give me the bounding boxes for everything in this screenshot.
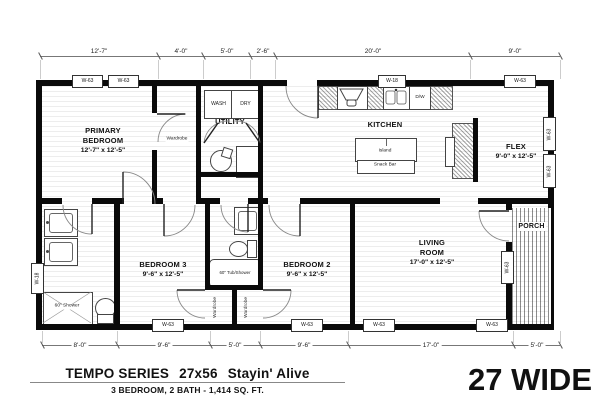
dim-top-5: 9'-0"	[507, 48, 524, 55]
dim-top-1: 4'-0"	[173, 48, 190, 55]
room-name: PRIMARY BEDROOM	[48, 126, 158, 146]
kitchen-counter	[318, 86, 339, 110]
washer: WASH	[204, 90, 233, 119]
range-hood-icon	[337, 86, 366, 108]
room-size: 9'-6" x 12'-5"	[262, 271, 352, 278]
window-label: W-63	[514, 79, 526, 84]
wall	[42, 198, 62, 204]
extension-line	[250, 60, 251, 79]
extension-line	[513, 331, 514, 343]
plan-specs: 3 BEDROOM, 2 BATH - 1,414 SQ. FT.	[30, 385, 345, 395]
snack-bar-label: Snack Bar	[373, 164, 397, 169]
extension-line	[210, 331, 211, 343]
shower-text: 60" Shower	[55, 304, 80, 309]
wall	[152, 80, 157, 113]
window-label: W-63	[373, 323, 385, 328]
wall	[473, 118, 478, 182]
extension-line	[117, 331, 118, 343]
toilet-tank-primary	[97, 314, 114, 324]
extension-line	[348, 331, 349, 343]
room-size: 9'-0" x 12'-5"	[481, 153, 551, 160]
tub-shower-text: 60" Tub/Shower	[219, 270, 250, 275]
dim-top-0: 12'-7"	[89, 48, 110, 55]
window-w63-top-2: W-63	[108, 75, 139, 88]
room-name: LIVING ROOM	[387, 238, 477, 258]
plan-title: TEMPO SERIES27x56Stayin' Alive	[30, 366, 345, 381]
extension-line	[260, 331, 261, 343]
window-label: W-63	[301, 323, 313, 328]
island-divider	[386, 139, 387, 146]
room-name: BEDROOM 3	[116, 260, 210, 270]
extension-line	[470, 60, 471, 79]
room-name: FLEX	[481, 142, 551, 152]
shower-label: 60" Shower	[54, 305, 81, 310]
wall	[156, 198, 163, 204]
primary-bath-door	[62, 204, 93, 235]
window-label: W-63	[505, 262, 510, 274]
room-label-kitchen: KITCHEN	[345, 120, 425, 130]
washer-label: WASH	[211, 102, 226, 107]
floor-plan-canvas: W-63 W-63 W-18 W-63 W-63 W-63 W-63 W-63 …	[0, 0, 600, 409]
wall	[478, 198, 554, 204]
dim-top-4: 20'-0"	[363, 48, 384, 55]
extension-line	[42, 331, 43, 343]
window-w18-bath: W-18	[31, 263, 44, 294]
window-w63-porch: W-63	[501, 251, 514, 284]
room-label-bedroom2: BEDROOM 2 9'-6" x 12'-5"	[262, 260, 352, 278]
footer-block: TEMPO SERIES27x56Stayin' Alive 3 BEDROOM…	[30, 366, 345, 395]
extension-line	[560, 331, 561, 343]
wall	[201, 172, 263, 177]
dryer: DRY	[231, 90, 260, 119]
model-size: 27x56	[179, 366, 218, 381]
room-label-flex: FLEX 9'-0" x 12'-5"	[481, 142, 551, 160]
faucet-icon	[46, 250, 49, 253]
wall	[506, 282, 512, 324]
island-text: Island	[379, 149, 392, 154]
series-name: TEMPO SERIES	[65, 366, 169, 381]
window-w18-kitchen: W-18	[378, 75, 406, 88]
porch-edge	[551, 208, 554, 327]
entertainment-center	[452, 123, 475, 179]
window-w63-bedroom2: W-63	[291, 319, 323, 332]
window-w63-bedroom3: W-63	[152, 319, 184, 332]
wardrobe-bedroom2: Wardrobe	[240, 291, 254, 323]
dim-bottom-2: 5'-0"	[227, 342, 244, 349]
room-size: 17'-0" x 12'-5"	[387, 259, 477, 266]
wardrobe-bedroom3: Wardrobe	[209, 291, 223, 323]
room-size: 9'-6" x 12'-5"	[116, 271, 210, 278]
front-door	[478, 210, 510, 242]
room-label-porch: PORCH	[512, 215, 551, 233]
bath-sink-2	[44, 238, 78, 266]
closet-door-arcs	[202, 118, 262, 144]
bath2-door	[220, 204, 249, 233]
window-label: W-18	[35, 273, 40, 285]
room-name: KITCHEN	[345, 120, 425, 130]
dim-bottom-4: 17'-0"	[421, 342, 442, 349]
extension-line	[560, 60, 561, 79]
window-label: W-63	[118, 79, 130, 84]
toilet-tank-bath2	[247, 240, 257, 258]
island-label: Island	[378, 150, 393, 155]
window-label: W-18	[386, 79, 398, 84]
dim-bottom-1: 9'-6"	[156, 342, 173, 349]
wide-label: 27 WIDE	[468, 362, 592, 398]
window-w63-top-1: W-63	[72, 75, 103, 88]
window-w63-top-3: W-63	[504, 75, 536, 88]
model-name: Stayin' Alive	[228, 366, 310, 381]
dim-top-3: 2'-6"	[255, 48, 272, 55]
wardrobe2-door	[263, 289, 292, 318]
primary-bedroom-door	[122, 171, 156, 205]
sink-basins-icon	[383, 86, 409, 108]
dim-bottom-5: 5'-0"	[529, 342, 546, 349]
entertainment-center-shelf	[445, 137, 455, 167]
dim-top-2: 5'-0"	[219, 48, 236, 55]
room-label-living-room: LIVING ROOM 17'-0" x 12'-5"	[387, 238, 477, 266]
window-label: W-63	[547, 128, 552, 140]
sink-basin	[49, 242, 73, 262]
kitchen-counter	[429, 86, 453, 110]
room-label-bedroom3: BEDROOM 3 9'-6" x 12'-5"	[116, 260, 210, 278]
footer-rule	[30, 382, 345, 383]
dishwasher: D/W	[409, 86, 431, 110]
room-name: PORCH	[517, 222, 545, 231]
wardrobe3-door	[177, 289, 206, 318]
window-label: W-63	[547, 165, 552, 177]
extension-line	[40, 60, 41, 79]
dim-bottom-0: 8'-0"	[72, 342, 89, 349]
wall	[232, 290, 237, 324]
dryer-label: DRY	[240, 102, 250, 107]
window-w63-living-2: W-63	[476, 319, 508, 332]
wardrobe-text: Wardrobe	[245, 297, 250, 318]
faucet-icon	[46, 221, 49, 224]
bedroom2-door	[268, 204, 301, 237]
dishwasher-label: D/W	[415, 96, 424, 101]
wall	[196, 80, 201, 204]
extension-line	[158, 60, 159, 79]
dim-bottom-3: 9'-6"	[296, 342, 313, 349]
window-w63-living-1: W-63	[363, 319, 395, 332]
toilet-bath2	[229, 241, 248, 257]
window-label: W-63	[486, 323, 498, 328]
snack-bar-text: Snack Bar	[374, 163, 396, 168]
dimension-line-top	[40, 56, 560, 57]
rear-entry-door	[285, 85, 319, 119]
room-label-primary-bedroom: PRIMARY BEDROOM 12'-7" x 12'-5"	[48, 126, 158, 154]
room-name: BEDROOM 2	[262, 260, 352, 270]
extension-line	[275, 60, 276, 79]
primary-wardrobe-door	[157, 113, 187, 143]
wardrobe-text: Wardrobe	[214, 297, 219, 318]
wall	[506, 198, 512, 210]
tub-shower-label: 60" Tub/Shower	[218, 271, 251, 275]
room-size: 12'-7" x 12'-5"	[48, 147, 158, 154]
wall	[300, 198, 440, 204]
extension-line	[203, 60, 204, 79]
window-label: W-63	[82, 79, 94, 84]
window-label: W-63	[162, 323, 174, 328]
bedroom3-door	[163, 204, 196, 237]
